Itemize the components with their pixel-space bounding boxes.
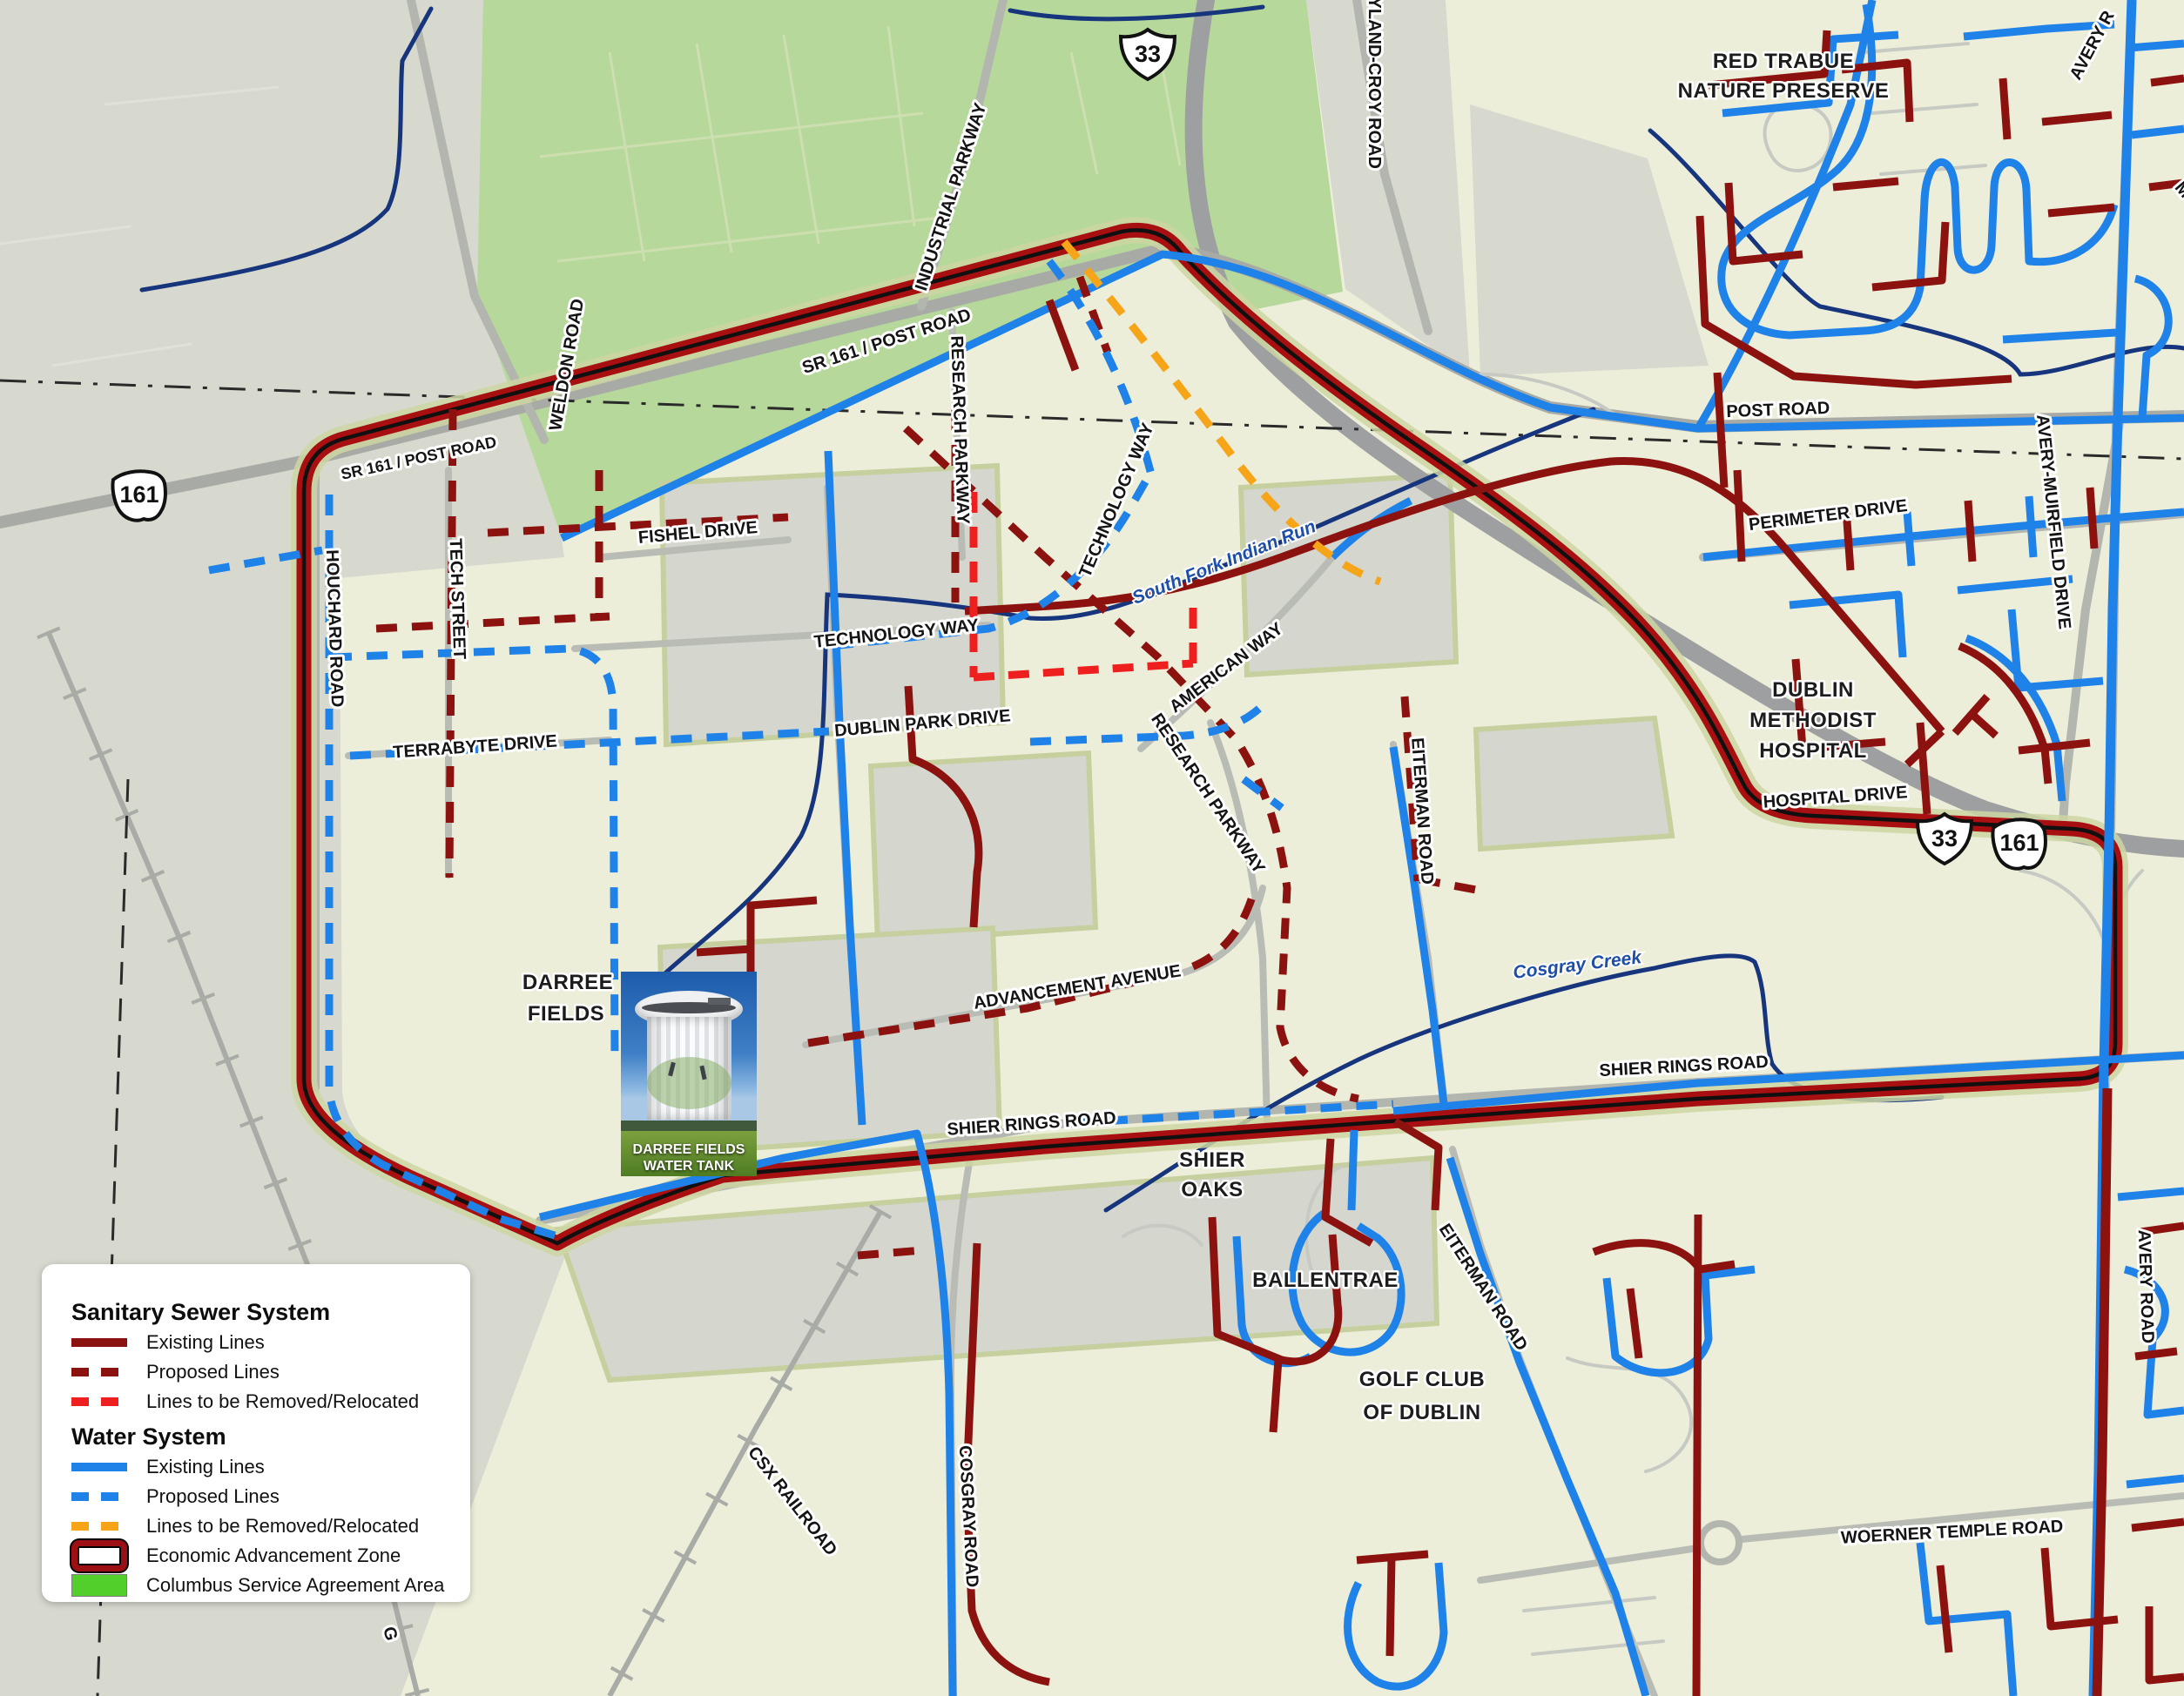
area-label: OAKS [1181, 1178, 1243, 1201]
parcel [1476, 718, 1672, 849]
area-label: RED TRABUE [1713, 50, 1854, 73]
oh-161-shield-west: 161 [112, 471, 165, 520]
legend-item-label: Columbus Service Agreement Area [146, 1574, 444, 1597]
sewer-removed-swatch [71, 1397, 127, 1406]
parcel [871, 753, 1095, 942]
shield-number: 33 [1931, 825, 1958, 851]
legend-item-label: Lines to be Removed/Relocated [146, 1390, 419, 1413]
area-label: BALLENTRAE [1252, 1269, 1399, 1292]
zone-swatch-wrap [71, 1540, 127, 1571]
area-label: HOSPITAL [1759, 739, 1867, 763]
legend-item-label: Proposed Lines [146, 1361, 280, 1383]
legend-row-water-existing: Existing Lines [71, 1452, 470, 1482]
road-label: AVERY ROAD [2134, 1229, 2158, 1343]
legend-row-zone: Economic Advancement Zone [71, 1541, 470, 1571]
legend-water-title: Water System [71, 1423, 470, 1450]
road-label: POST ROAD [1726, 399, 1830, 421]
photo-caption: DARREE FIELDS WATER TANK [621, 1141, 757, 1174]
legend-item-label: Existing Lines [146, 1456, 265, 1478]
sewer-existing-swatch [71, 1338, 127, 1347]
water-existing-swatch [71, 1463, 127, 1471]
legend-sewer-title: Sanitary Sewer System [71, 1299, 470, 1326]
water-removed-swatch [71, 1522, 127, 1531]
shield-number: 33 [1135, 41, 1161, 67]
oh-161-shield-east: 161 [1992, 819, 2045, 868]
photo-caption-line2: WATER TANK [621, 1158, 757, 1174]
area-label: DARREE [522, 971, 613, 994]
area-label: GOLF CLUB [1359, 1368, 1485, 1391]
map-document: 33 161 33 161 INDUSTRIAL PARKWAY HYLAND-… [0, 0, 2184, 1696]
tank-vent [708, 998, 731, 1005]
legend-row-sewer-existing: Existing Lines [71, 1328, 470, 1357]
water-proposed-swatch [71, 1492, 127, 1501]
shield-number: 161 [119, 481, 158, 508]
legend-item-label: Proposed Lines [146, 1485, 280, 1508]
legend-row-sewer-removed: Lines to be Removed/Relocated [71, 1387, 470, 1417]
area-label: SHIER [1179, 1148, 1245, 1172]
area-label: NATURE PRESERVE [1678, 79, 1890, 103]
legend-item-label: Lines to be Removed/Relocated [146, 1515, 419, 1538]
legend-row-columbus: Columbus Service Agreement Area [71, 1571, 470, 1600]
columbus-service-area-swatch [71, 1574, 127, 1597]
area-label: OF DUBLIN [1363, 1401, 1480, 1424]
area-label: FIELDS [528, 1002, 604, 1026]
legend-row-water-proposed: Proposed Lines [71, 1482, 470, 1511]
legend-panel: Sanitary Sewer System Existing Lines Pro… [42, 1264, 470, 1602]
sewer-proposed-swatch [71, 1368, 127, 1376]
water-tank-photo: DARREE FIELDS WATER TANK [621, 972, 757, 1176]
area-label: DUBLIN [1772, 678, 1854, 702]
shield-number: 161 [1999, 830, 2039, 856]
photo-caption-line1: DARREE FIELDS [621, 1141, 757, 1158]
legend-row-sewer-proposed: Proposed Lines [71, 1357, 470, 1387]
economic-advancement-zone-swatch [71, 1540, 127, 1571]
legend-row-water-removed: Lines to be Removed/Relocated [71, 1511, 470, 1541]
road-label: HYLAND-CROY ROAD [1365, 0, 1384, 169]
area-label: METHODIST [1749, 709, 1877, 732]
legend-item-label: Existing Lines [146, 1331, 265, 1354]
legend-item-label: Economic Advancement Zone [146, 1545, 401, 1567]
columbus-swatch-wrap [71, 1574, 127, 1597]
tank-soccer-field-art [647, 1057, 731, 1109]
